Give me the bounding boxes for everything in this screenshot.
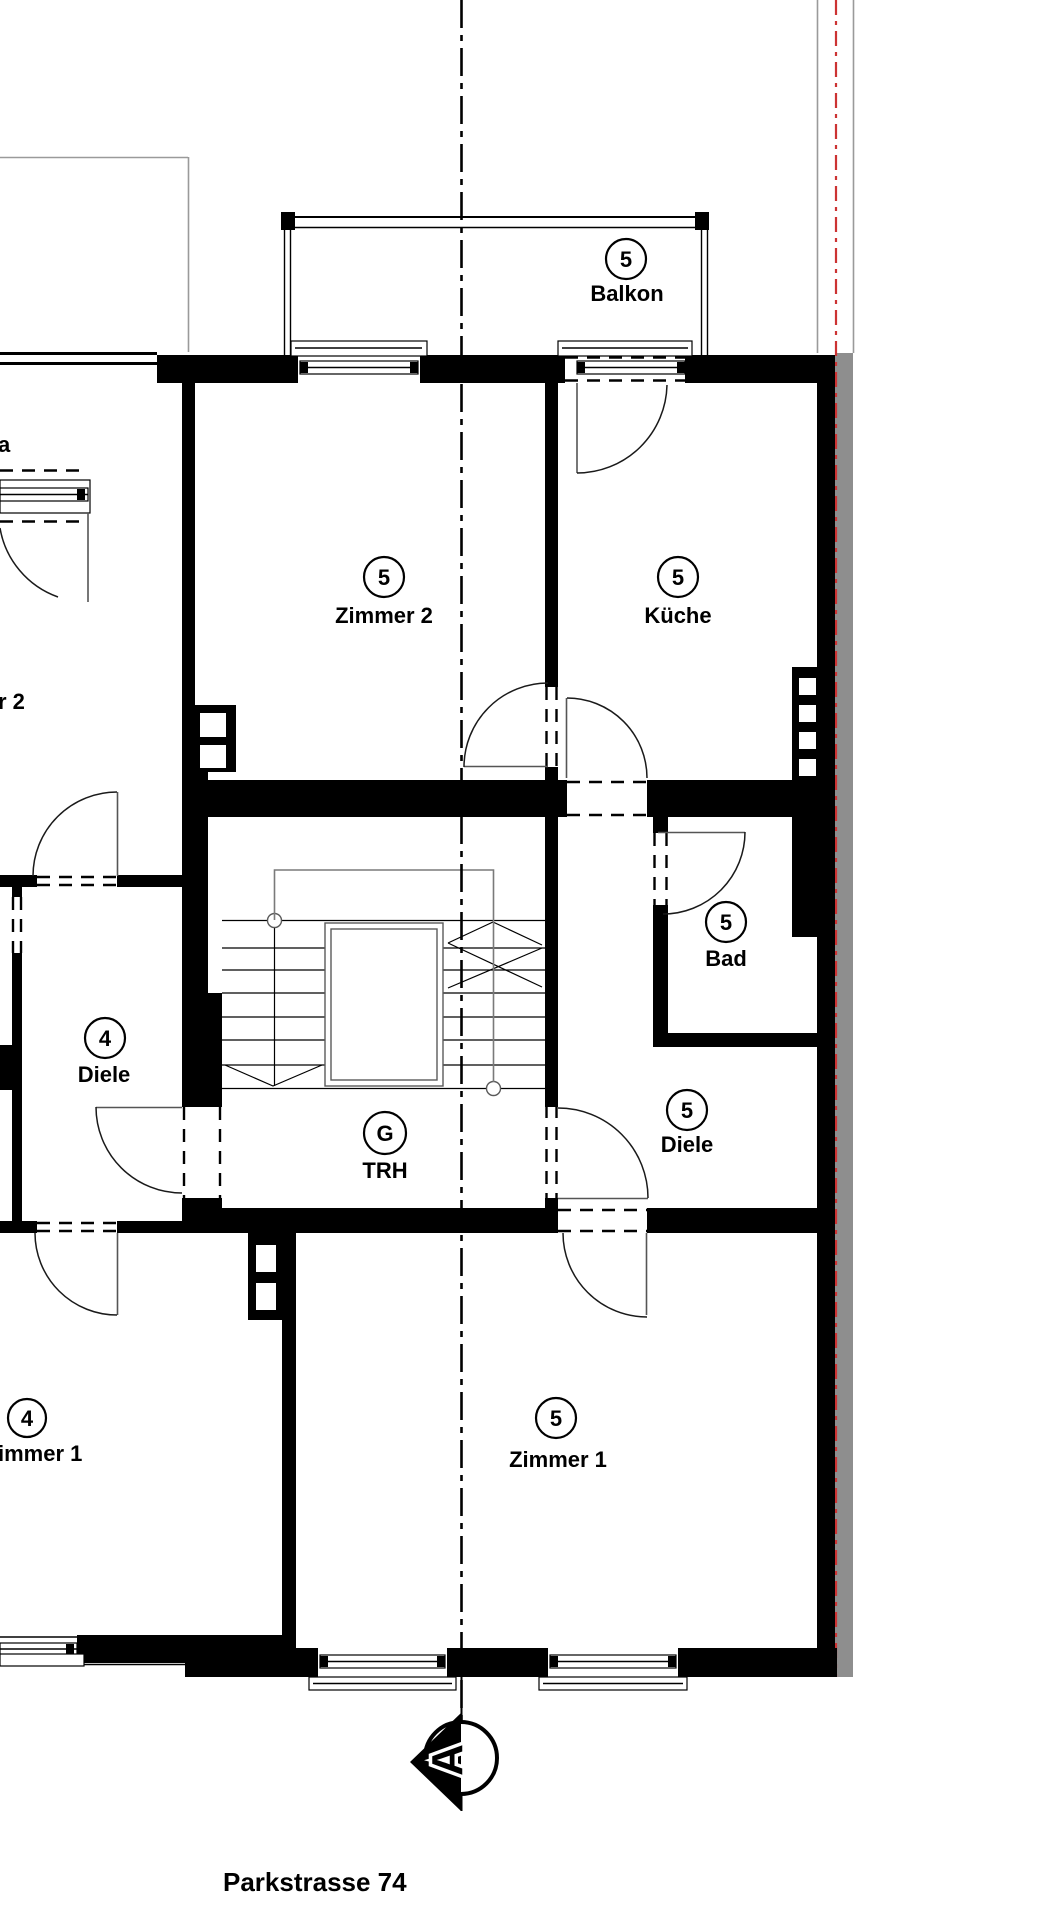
- balcony-post-left: [281, 212, 295, 230]
- window-end-block: [320, 1656, 328, 1667]
- walkline-end-node: [487, 1082, 501, 1096]
- label-trh: G TRH: [362, 1112, 407, 1183]
- neighbor-wall-z1-a: [0, 1221, 37, 1233]
- label-kueche: 5 Küche: [644, 557, 711, 628]
- stair-direction-arrow: [225, 1065, 322, 1086]
- door-swing-arc: [577, 385, 667, 473]
- chimney-left-flue-2: [200, 745, 226, 768]
- wall-trh-right-upper: [545, 817, 558, 1107]
- window-sill: [0, 1654, 84, 1666]
- room-name: Küche: [644, 603, 711, 628]
- door-swing-arc: [33, 792, 117, 876]
- label-zimmer1-unit5: 5 Zimmer 1: [509, 1398, 607, 1472]
- wall-top: [157, 355, 835, 383]
- door-end-block: [677, 362, 685, 373]
- window-end-block: [668, 1656, 676, 1667]
- wall-right-outer: [817, 355, 835, 1677]
- street-label: Parkstrasse 74: [223, 1867, 407, 1897]
- wall-left-vertical-step-a: [208, 780, 222, 817]
- wall-zimmer2-kueche-lower: [545, 767, 558, 780]
- door-swing-arc: [464, 683, 548, 767]
- window-end-block: [437, 1656, 445, 1667]
- window-end-block: [66, 1644, 74, 1654]
- window-zimmer1-east: [539, 1648, 687, 1690]
- door-kueche: [567, 698, 648, 815]
- wall-trh-right-stub: [545, 1198, 558, 1208]
- wall-left-vertical-mid: [182, 772, 208, 1107]
- room-name: Zimmer 2: [335, 603, 433, 628]
- door-neighbor-r2: [33, 792, 118, 885]
- party-wall-gray-band: [835, 353, 853, 1677]
- elevator-shaft-inner: [331, 929, 437, 1080]
- section-marker-letter: A: [423, 1744, 472, 1776]
- label-bad: 5 Bad: [705, 902, 747, 971]
- door-swing-arc: [0, 528, 58, 597]
- wall-diele5-bottom: [647, 1208, 817, 1233]
- label-balkon: 5 Balkon: [590, 239, 663, 306]
- label-diele5: 5 Diele: [661, 1090, 714, 1157]
- door-end-block: [577, 362, 585, 373]
- door-apartment5-entrance: [547, 1105, 649, 1199]
- window-end-block: [550, 1656, 558, 1667]
- door-swing-arc: [567, 698, 647, 778]
- wall-bad-bottom: [653, 1033, 817, 1047]
- door-swing-arc: [663, 832, 745, 914]
- room-name: Zimmer 1: [509, 1447, 607, 1472]
- neighbor-top-wall-outer: [0, 352, 157, 355]
- chimney-kueche-flue-1: [799, 678, 816, 695]
- room-number: 5: [620, 247, 632, 272]
- window-neighbor-bottom: [0, 1637, 84, 1666]
- door-diele4-zimmer1: [35, 1223, 118, 1315]
- door-zimmer2: [464, 683, 557, 767]
- label-zimmer1-unit4: 4 immer 1: [0, 1399, 82, 1466]
- room-name: Bad: [705, 946, 747, 971]
- window-zimmer2: [291, 341, 427, 383]
- door-swing-arc: [558, 1108, 648, 1198]
- label-diele4: 4 Diele: [78, 1018, 131, 1087]
- door-apartment4-entrance: [96, 1107, 220, 1198]
- neighbor-label-a: a: [0, 432, 11, 457]
- neighbor-label-r2: r 2: [0, 689, 25, 714]
- chimney-kueche-flue-4: [799, 759, 816, 776]
- floor-plan-page: A 5 Balkon 5 Zimmer 2 5 Küche 5 Bad 5 Di…: [0, 0, 1041, 1920]
- room-name: Diele: [661, 1132, 714, 1157]
- label-zimmer2: 5 Zimmer 2: [335, 557, 433, 628]
- wall-left-vertical-lower: [182, 1198, 222, 1233]
- room-number: 4: [99, 1026, 112, 1051]
- room-name: Diele: [78, 1062, 131, 1087]
- room-number: G: [376, 1121, 393, 1146]
- chimney-zimmer1-flue-1: [256, 1245, 276, 1272]
- window-end-block: [300, 362, 308, 373]
- door-swing-arc: [563, 1233, 647, 1317]
- room-number: 4: [21, 1406, 34, 1431]
- room-number: 5: [550, 1406, 562, 1431]
- room-number: 5: [378, 565, 390, 590]
- neighbor-wall-z1-b: [117, 1221, 182, 1233]
- window-end-block: [410, 362, 418, 373]
- room-number: 5: [720, 910, 732, 935]
- room-number: 5: [672, 565, 684, 590]
- neighbor-wall-r2-b: [117, 875, 182, 887]
- door-end-block: [77, 489, 85, 500]
- wall-central-horizontal-east: [647, 780, 817, 817]
- wall-zimmer1-partition: [282, 1233, 296, 1648]
- room-name: TRH: [362, 1158, 407, 1183]
- wall-bottom-neighbor-a: [77, 1635, 185, 1663]
- room-name-cut: immer 1: [0, 1441, 82, 1466]
- balcony-post-right: [695, 212, 709, 230]
- wall-zimmer2-kueche-upper: [545, 383, 558, 687]
- wall-central-horizontal-west: [222, 780, 567, 817]
- room-labels: 5 Balkon 5 Zimmer 2 5 Küche 5 Bad 5 Diel…: [0, 239, 747, 1472]
- neighbor-top-wall-inner: [0, 362, 157, 365]
- stairwell: [222, 870, 545, 1096]
- wall-bad-left-upper: [653, 817, 668, 833]
- chimney-kueche-flue-3: [799, 732, 816, 749]
- door-diele5-zimmer1: [558, 1210, 647, 1317]
- wall-trh-bottom: [222, 1208, 558, 1233]
- chimney-zimmer1-flue-2: [256, 1283, 276, 1310]
- window-zimmer1-west: [309, 1648, 456, 1690]
- wall-left-vertical-step-b: [208, 993, 222, 1107]
- chimney-kueche-flue-2: [799, 705, 816, 722]
- balcony-door-kueche: [558, 341, 692, 473]
- wall-bad-left-lower: [653, 905, 668, 1033]
- wall-bad-right-thick: [792, 817, 817, 937]
- window-neighbor-mid: [0, 471, 90, 603]
- door-swing-arc: [35, 1233, 117, 1315]
- neighbor-wall-r2-a: [0, 875, 37, 887]
- neighbor-balcony-outline: [0, 157, 189, 352]
- room-name: Balkon: [590, 281, 663, 306]
- chimney-left-flue-1: [200, 713, 226, 737]
- floor-plan-drawing: A 5 Balkon 5 Zimmer 2 5 Küche 5 Bad 5 Di…: [0, 0, 1041, 1920]
- wall-bottom-neighbor-b: [185, 1635, 296, 1677]
- neighbor-wall-stub: [0, 1045, 12, 1090]
- stair-flight-left: [222, 914, 325, 1087]
- door-swing-arc: [96, 1107, 182, 1193]
- section-axis: A: [410, 0, 497, 1811]
- wall-left-vertical-upper: [182, 357, 195, 705]
- room-number: 5: [681, 1098, 693, 1123]
